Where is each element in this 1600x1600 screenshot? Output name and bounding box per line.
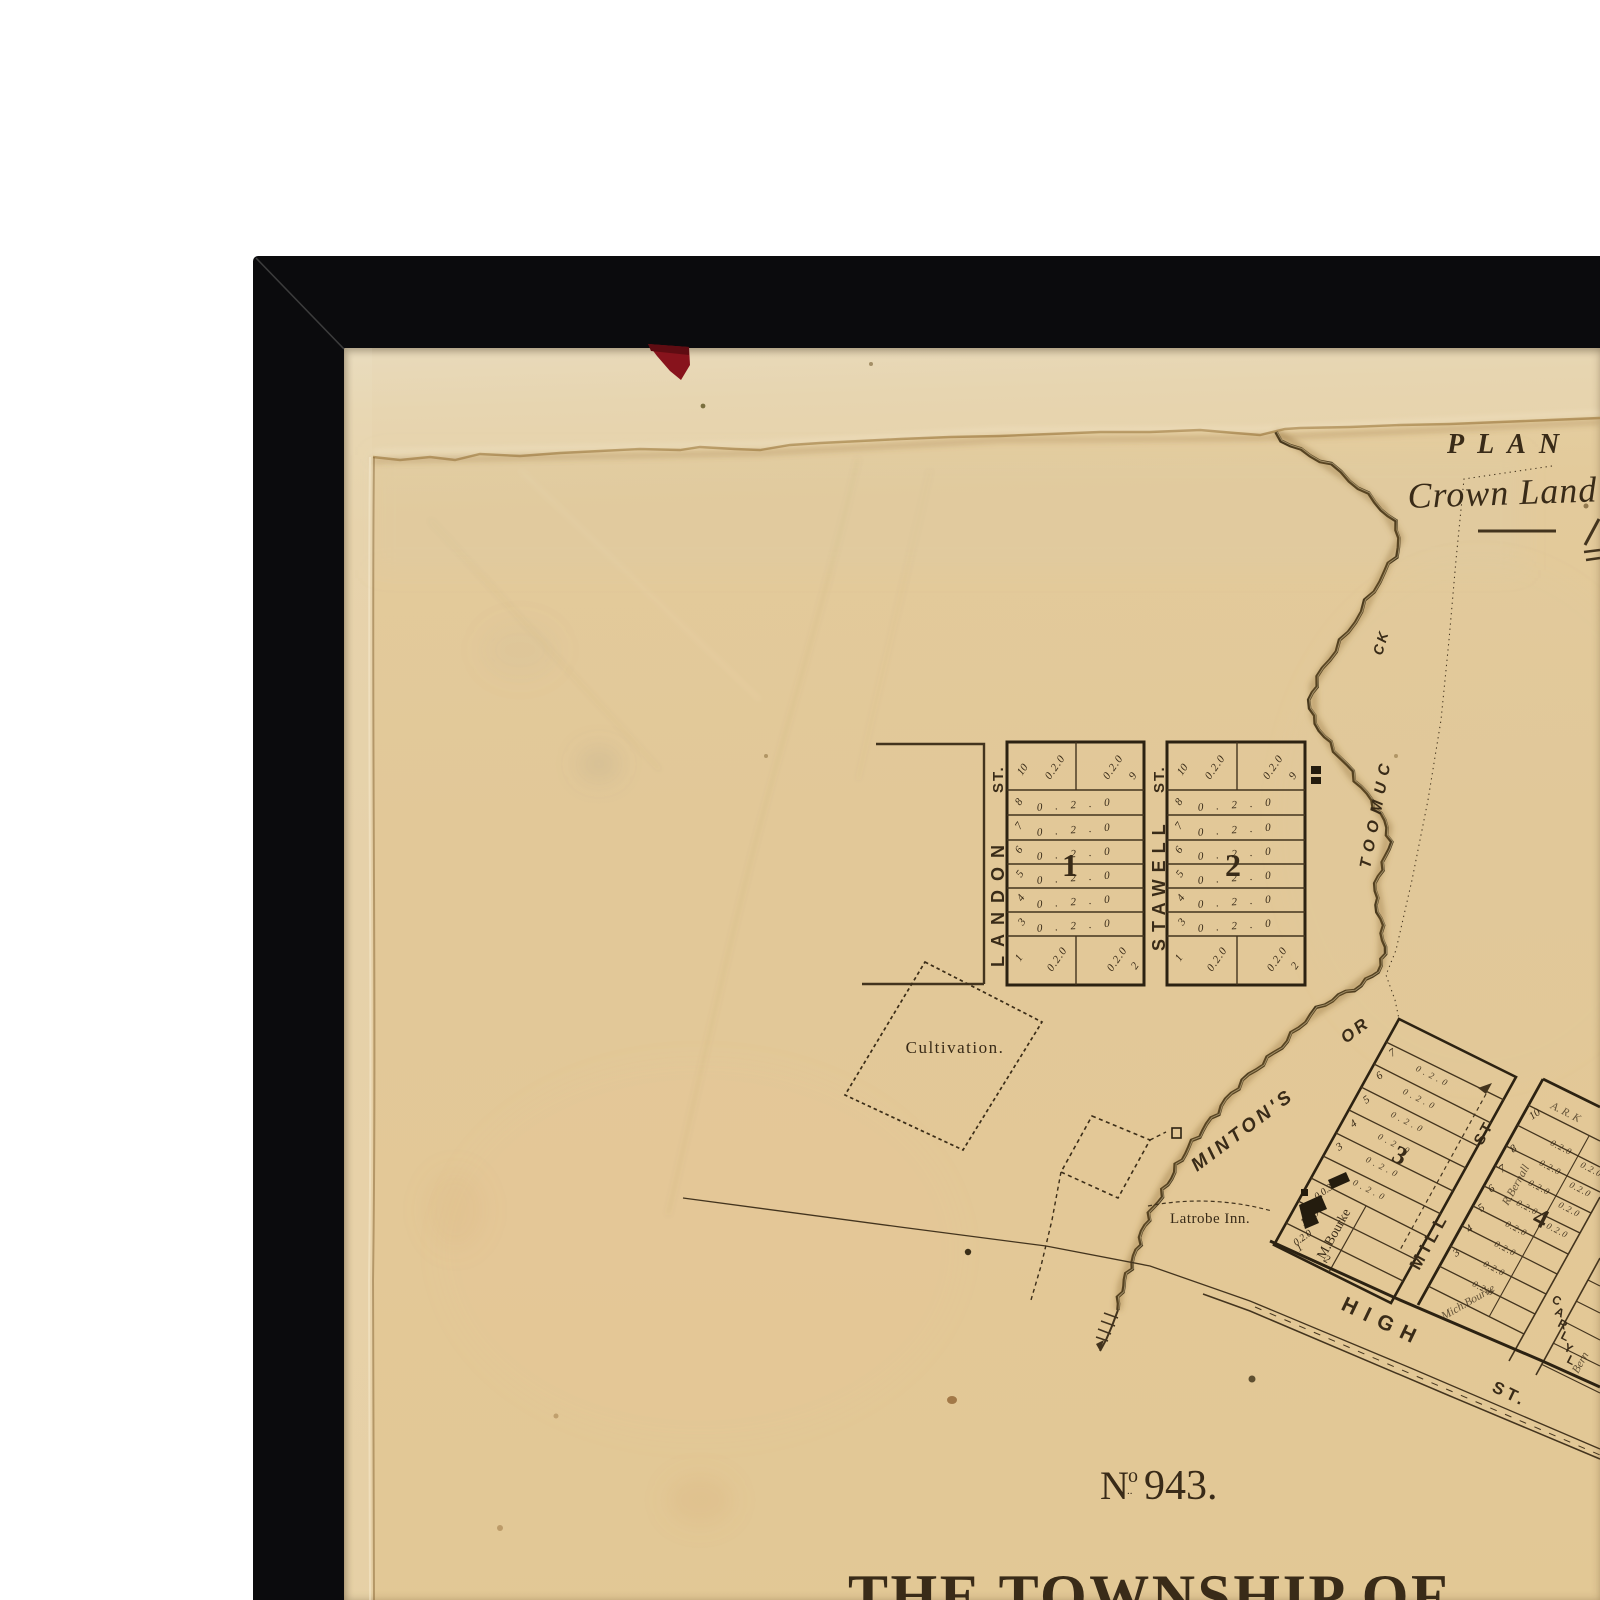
svg-text:PLAN: PLAN: [1446, 429, 1572, 460]
svg-text:..: ..: [1127, 1485, 1133, 1497]
svg-text:STAWELL: STAWELL: [1149, 817, 1169, 951]
svg-text:ST.: ST.: [1151, 765, 1168, 793]
svg-text:Crown Land: Crown Land: [1407, 469, 1598, 516]
svg-text:THE TOWNSHIP OF: THE TOWNSHIP OF: [848, 1563, 1450, 1600]
svg-text:943.: 943.: [1144, 1463, 1218, 1509]
svg-text:2: 2: [1225, 847, 1241, 883]
svg-text:LANDON: LANDON: [988, 836, 1008, 967]
svg-text:ST.: ST.: [990, 765, 1007, 793]
svg-text:N: N: [1100, 1463, 1129, 1508]
svg-text:o: o: [1128, 1465, 1138, 1487]
svg-text:Latrobe Inn.: Latrobe Inn.: [1170, 1211, 1250, 1227]
svg-text:Cultivation.: Cultivation.: [906, 1038, 1005, 1057]
svg-text:1: 1: [1062, 847, 1078, 883]
